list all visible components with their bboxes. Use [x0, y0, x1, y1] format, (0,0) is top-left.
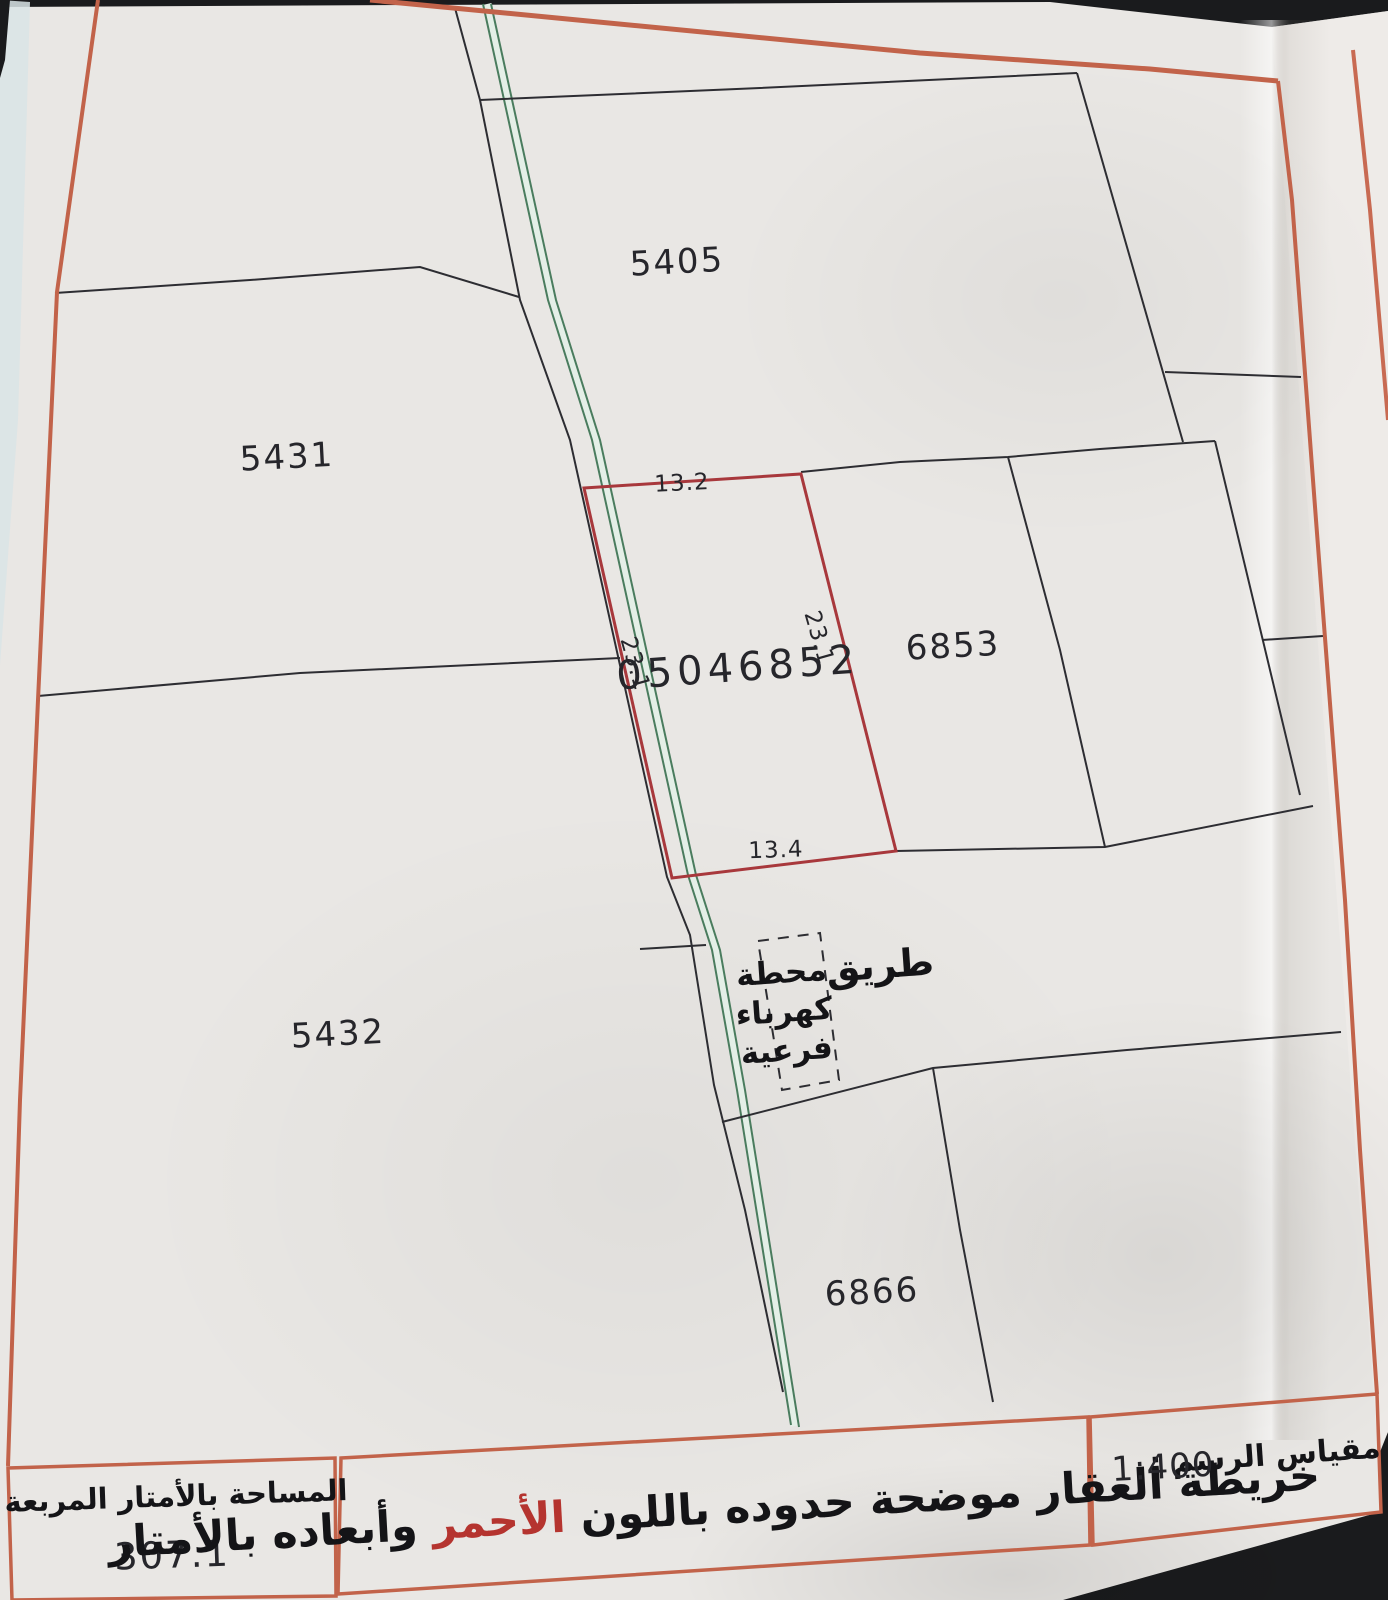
- road-label: طريق: [825, 941, 936, 990]
- parcel-number-6866: 6866: [824, 1272, 920, 1314]
- substation-line-2: كهرباء: [734, 989, 833, 1034]
- parcel-number-6853: 6853: [905, 626, 1001, 668]
- caption-red-word: الأحمر: [431, 1493, 567, 1550]
- parcel-number-5405: 5405: [629, 242, 725, 284]
- map-drawing: [0, 0, 1388, 1600]
- substation-line-1: محطة: [732, 951, 831, 996]
- cadastral-map-photo: 5405 5431 6853 5432 6866 05046852 13.2 1…: [0, 0, 1388, 1600]
- scale-box-value: 1:400: [1111, 1447, 1216, 1490]
- dimension-bottom: 13.4: [748, 837, 804, 864]
- shadow-blob: [730, 60, 1388, 540]
- parcel-number-5432: 5432: [290, 1014, 386, 1056]
- substation-label: محطة كهرباء فرعية: [732, 951, 837, 1074]
- parcel-number-5431: 5431: [239, 437, 335, 479]
- shadow-blob: [140, 800, 1140, 1560]
- dimension-top: 13.2: [654, 470, 710, 498]
- substation-line-3: فرعية: [737, 1028, 836, 1073]
